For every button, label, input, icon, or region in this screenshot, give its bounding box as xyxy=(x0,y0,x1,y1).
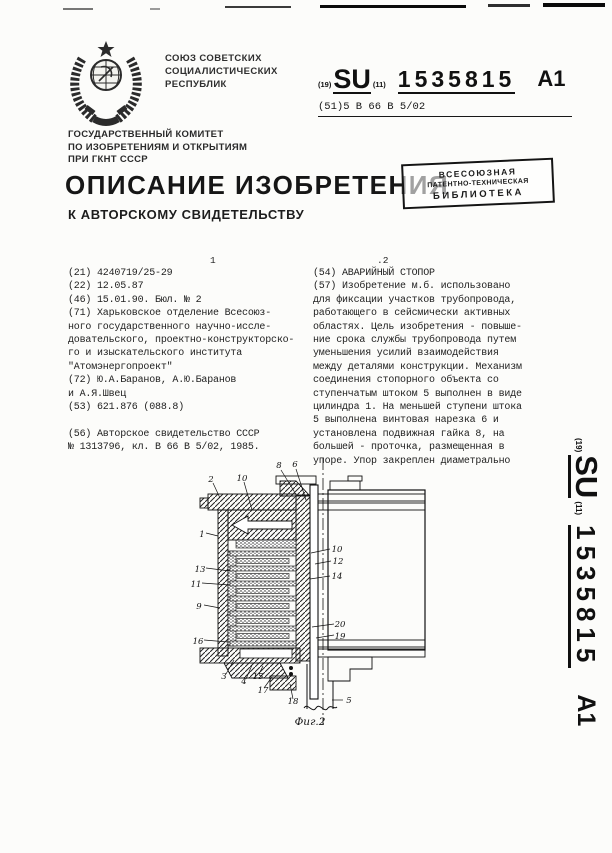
ipc-classification: (51)5 В 66 В 5/02 xyxy=(318,101,572,117)
inid-code-11: (11) xyxy=(373,80,386,89)
bibliographic-column: (21) 4240719/25-29 (22) 12.05.87 (46) 15… xyxy=(68,267,311,455)
sidebar-publication-number: (19) SU (11) 1535815 А1 xyxy=(545,438,601,744)
document-subtitle: К АВТОРСКОМУ СВИДЕТЕЛЬСТВУ xyxy=(68,207,304,222)
callout-10b: 10 xyxy=(332,545,343,555)
left-column-number: 1 xyxy=(210,255,216,266)
patent-page: СОЮЗ СОВЕТСКИХ СОЦИАЛИСТИЧЕСКИХ РЕСПУБЛИ… xyxy=(0,0,612,853)
right-column-number: .2 xyxy=(377,255,388,266)
scan-artifact xyxy=(488,4,530,7)
sidebar-number: 1535815 xyxy=(568,525,601,668)
library-stamp: ВСЕСОЮЗНАЯ ПАТЕНТНО-ТЕХНИЧЕСКАЯ БИБЛИОТЕ… xyxy=(401,158,555,210)
country-name: СОЮЗ СОВЕТСКИХ СОЦИАЛИСТИЧЕСКИХ РЕСПУБЛИ… xyxy=(165,52,278,91)
patent-figure: 2 10 8 6 1 13 11 9 16 10 12 14 20 19 3 4… xyxy=(180,452,490,767)
country-code: SU xyxy=(333,66,371,94)
ussr-emblem-icon xyxy=(66,37,146,131)
star-icon xyxy=(98,41,115,57)
callout-2: 2 xyxy=(207,475,213,485)
scan-artifact xyxy=(150,8,160,10)
callout-18: 18 xyxy=(288,697,299,707)
friction-plate-stack xyxy=(228,540,296,646)
callout-5: 5 xyxy=(346,696,351,706)
sidebar-code-11: (11) xyxy=(574,501,583,515)
abstract-column: (54) АВАРИЙНЫЙ СТОПОР (57) Изобретение м… xyxy=(313,267,561,468)
callout-3: 3 xyxy=(221,672,226,682)
callout-14: 14 xyxy=(332,572,343,582)
sidebar-country-code: SU xyxy=(568,455,601,498)
callout-15: 15 xyxy=(253,672,264,682)
callout-20: 20 xyxy=(334,620,346,630)
sidebar-code-19: (19) xyxy=(574,438,583,452)
scan-artifact xyxy=(63,8,93,10)
sidebar-kind-code: А1 xyxy=(571,694,601,726)
callout-9: 9 xyxy=(196,602,202,612)
callout-10a: 10 xyxy=(237,474,248,484)
callout-17: 17 xyxy=(258,686,269,696)
callout-8: 8 xyxy=(276,461,282,471)
callout-12: 12 xyxy=(333,557,344,567)
publication-number-row: (19) SU (11) 1535815 А1 xyxy=(318,66,565,94)
committee-name: ГОСУДАРСТВЕННЫЙ КОМИТЕТ ПО ИЗОБРЕТЕНИЯМ … xyxy=(68,129,247,167)
scan-artifact xyxy=(543,3,605,7)
publication-number: 1535815 xyxy=(398,66,516,94)
callout-16: 16 xyxy=(193,637,204,647)
callout-6: 6 xyxy=(292,460,298,470)
kind-code: А1 xyxy=(537,66,565,92)
scan-artifact xyxy=(225,6,291,8)
document-title: ОПИСАНИЕ ИЗОБРЕТЕНИЯ xyxy=(65,170,449,201)
callout-19: 19 xyxy=(335,632,346,642)
scan-artifact xyxy=(320,5,466,8)
callout-11: 11 xyxy=(191,580,202,590)
figure-caption: Фиг.2 xyxy=(295,716,326,728)
callout-4: 4 xyxy=(240,677,246,687)
callout-13: 13 xyxy=(195,565,206,575)
callout-1: 1 xyxy=(199,530,204,540)
shaft xyxy=(304,664,337,710)
inid-code-19: (19) xyxy=(318,80,331,89)
